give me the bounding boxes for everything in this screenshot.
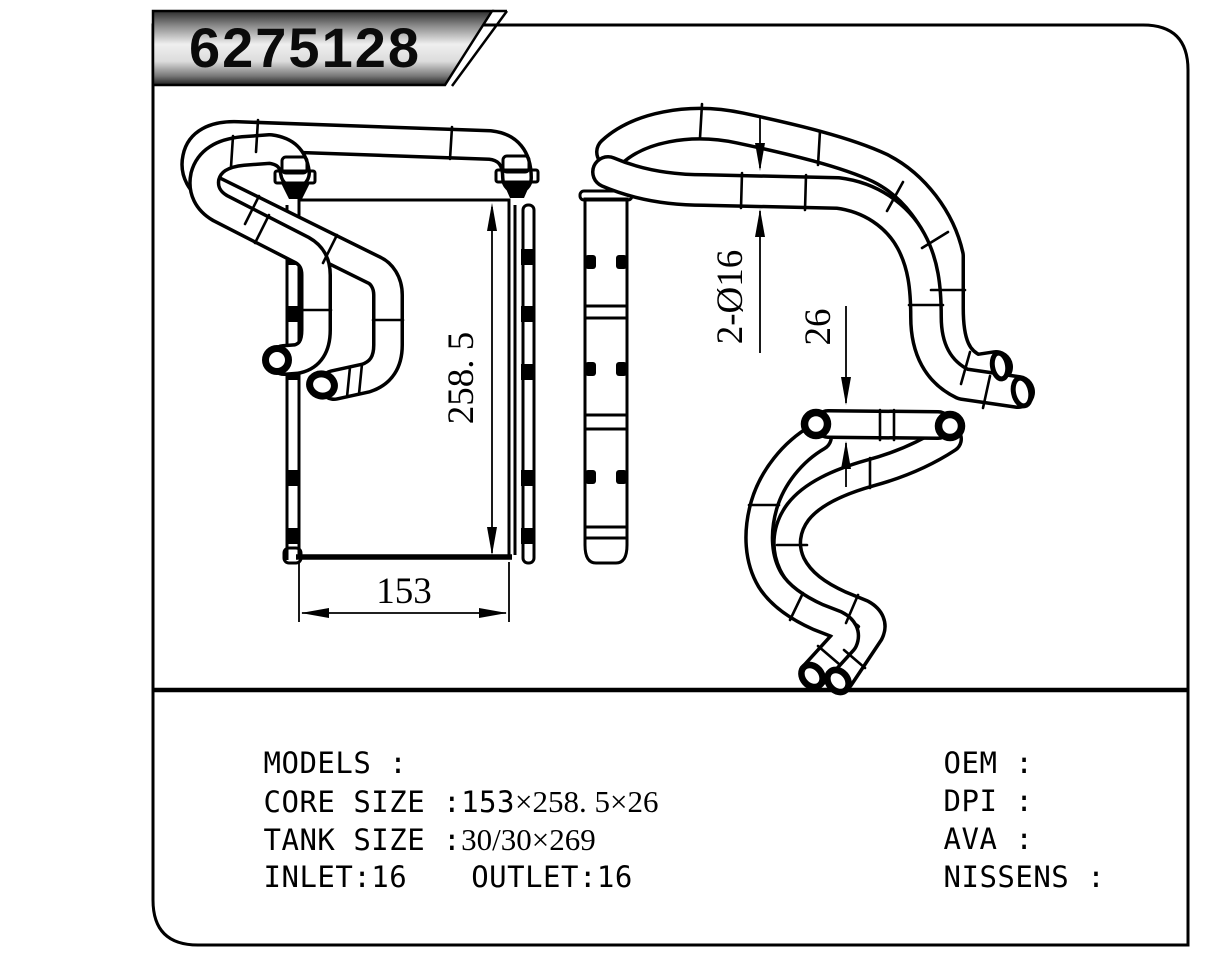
dimension-height-label: 258. 5 <box>441 332 482 425</box>
spec-row-inlet-outlet: INLET:16OUTLET:16 <box>225 841 633 913</box>
heater-core-datasheet-page: 258. 5 153 2-Ø16 26 6275128 MODELS : COR… <box>0 0 1223 964</box>
nissens-label: NISSENS : <box>944 860 1106 894</box>
dimension-ports-label: 2-Ø16 <box>710 250 751 345</box>
dimension-width: 153 <box>299 562 509 622</box>
pipe-view-drawing <box>608 104 1033 696</box>
inlet-value: INLET:16 <box>264 860 408 894</box>
dimension-height: 258. 5 <box>441 203 497 555</box>
part-number: 6275128 <box>189 16 421 79</box>
side-view-drawing <box>580 191 632 563</box>
part-number-badge: 6275128 <box>153 11 507 86</box>
front-view-drawing <box>196 120 538 563</box>
spec-row-nissens: NISSENS : <box>905 841 1105 913</box>
outlet-value: OUTLET:16 <box>471 860 633 894</box>
dimension-width-label: 153 <box>376 571 432 612</box>
dimension-depth-label: 26 <box>798 309 839 346</box>
dimension-ports: 2-Ø16 <box>710 118 765 353</box>
